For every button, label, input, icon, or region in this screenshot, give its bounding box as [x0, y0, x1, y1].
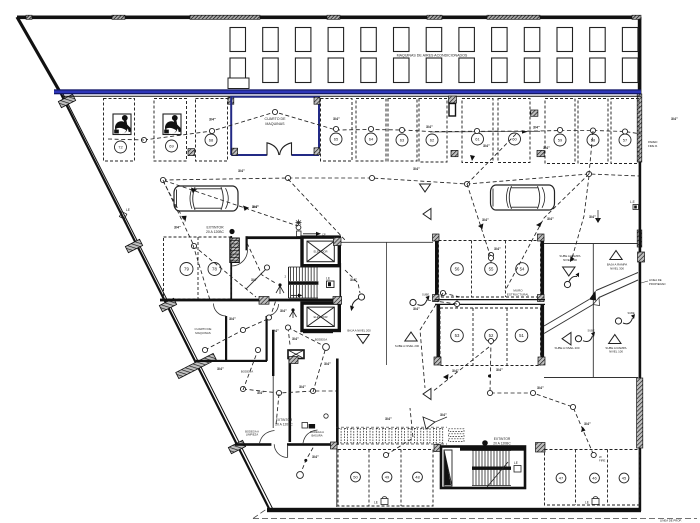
svg-text:3/4": 3/4" — [584, 422, 591, 426]
svg-text:LE: LE — [514, 461, 518, 465]
svg-text:LE: LE — [326, 277, 331, 281]
svg-text:3/4": 3/4" — [483, 144, 490, 148]
svg-text:3/4": 3/4" — [299, 385, 306, 389]
svg-text:EXTINTOR: EXTINTOR — [206, 226, 224, 230]
svg-text:49: 49 — [385, 474, 390, 479]
svg-text:FIRE: FIRE — [599, 459, 606, 463]
svg-text:LIMPIEZA: LIMPIEZA — [246, 433, 258, 437]
svg-text:MAQUINAS DE AIRES ACONDICIONAD: MAQUINAS DE AIRES ACONDICIONADOS — [397, 54, 468, 58]
svg-text:PROPIEDAD: PROPIEDAD — [649, 282, 665, 286]
svg-text:60: 60 — [512, 136, 517, 141]
svg-text:ELEVADOR: ELEVADOR — [314, 250, 328, 254]
svg-text:20 A 120BC: 20 A 120BC — [493, 442, 511, 446]
svg-text:65: 65 — [334, 136, 339, 141]
svg-text:BODEGA: BODEGA — [315, 338, 327, 342]
svg-text:MAQUINAS: MAQUINAS — [195, 331, 210, 335]
svg-text:54: 54 — [520, 266, 525, 271]
svg-text:57: 57 — [623, 137, 628, 142]
svg-text:SUBE: SUBE — [422, 293, 429, 297]
svg-text:3/4": 3/4" — [350, 278, 357, 282]
svg-text:CUARTO DE: CUARTO DE — [264, 117, 286, 121]
svg-text:3/4": 3/4" — [324, 362, 331, 366]
svg-text:59: 59 — [558, 137, 563, 142]
svg-text:3/4": 3/4" — [440, 413, 447, 417]
svg-text:ESTRUCTURAL: ESTRUCTURAL — [507, 292, 530, 296]
svg-text:3/4": 3/4" — [413, 307, 420, 311]
svg-text:EXTINTOR: EXTINTOR — [494, 437, 511, 441]
svg-text:L.E: L.E — [630, 200, 635, 204]
svg-text:3/4": 3/4" — [589, 215, 596, 219]
svg-text:MAQUINAS: MAQUINAS — [265, 122, 285, 126]
svg-text:3/4": 3/4" — [494, 247, 501, 251]
svg-text:BAJA A NIVEL 200: BAJA A NIVEL 200 — [347, 329, 371, 333]
svg-text:45: 45 — [622, 475, 627, 480]
svg-text:3/4": 3/4" — [543, 146, 550, 150]
svg-text:3/4": 3/4" — [537, 386, 544, 390]
svg-text:72: 72 — [118, 144, 123, 149]
svg-text:BODEGA A: BODEGA A — [245, 429, 259, 433]
svg-text:46: 46 — [592, 475, 597, 480]
svg-text:55: 55 — [489, 266, 494, 271]
svg-text:52: 52 — [489, 333, 494, 338]
svg-text:ELEVADOR: ELEVADOR — [314, 315, 328, 319]
svg-text:3/4": 3/4" — [671, 117, 678, 121]
svg-text:79: 79 — [184, 266, 189, 271]
svg-text:NIVEL 300: NIVEL 300 — [610, 266, 624, 270]
svg-text:LE: LE — [585, 501, 589, 505]
svg-text:3/4": 3/4" — [333, 117, 340, 121]
svg-text:LE: LE — [374, 501, 378, 505]
svg-text:3/4": 3/4" — [280, 309, 287, 313]
svg-text:3/4": 3/4" — [257, 391, 264, 395]
svg-text:3/4": 3/4" — [533, 125, 540, 129]
svg-text:SUBE A NIVEL 200: SUBE A NIVEL 200 — [555, 346, 580, 350]
svg-text:EXTINTOR: EXTINTOR — [276, 418, 293, 422]
svg-text:3/4": 3/4" — [251, 278, 258, 282]
svg-text:51: 51 — [519, 333, 524, 338]
svg-text:78: 78 — [212, 266, 217, 271]
svg-text:61: 61 — [475, 136, 480, 141]
svg-text:62: 62 — [430, 137, 435, 142]
svg-text:BASURA: BASURA — [311, 433, 322, 437]
svg-text:68: 68 — [209, 137, 214, 142]
svg-text:47: 47 — [559, 475, 564, 480]
svg-text:BODEGA A: BODEGA A — [310, 430, 324, 434]
svg-text:LINEA DE PROP.: LINEA DE PROP. — [660, 519, 682, 523]
svg-text:3/4": 3/4" — [252, 205, 259, 209]
svg-text:BODEGA: BODEGA — [241, 370, 253, 374]
svg-text:3/4": 3/4" — [229, 317, 236, 321]
svg-text:56: 56 — [455, 266, 460, 271]
svg-text:3/4": 3/4" — [385, 417, 392, 421]
svg-text:64: 64 — [369, 136, 374, 141]
svg-text:SUBE: SUBE — [628, 311, 635, 315]
svg-text:3/4": 3/4" — [238, 169, 245, 173]
svg-text:3/4": 3/4" — [426, 125, 433, 129]
svg-text:3/4": 3/4" — [482, 218, 489, 222]
svg-text:48: 48 — [415, 474, 420, 479]
svg-text:69: 69 — [169, 143, 174, 148]
svg-text:CP: CP — [322, 232, 326, 236]
svg-text:58: 58 — [591, 137, 596, 142]
svg-text:3/4": 3/4" — [312, 455, 319, 459]
svg-text:3/4": 3/4" — [209, 118, 216, 122]
svg-text:NIVEL 100: NIVEL 100 — [609, 350, 623, 354]
svg-text:SUBE: SUBE — [588, 329, 595, 333]
svg-text:SUBE A NIVEL 200: SUBE A NIVEL 200 — [395, 344, 420, 348]
svg-text:63: 63 — [400, 137, 405, 142]
svg-text:3/4": 3/4" — [174, 226, 181, 230]
svg-text:3/4": 3/4" — [217, 367, 224, 371]
svg-text:50: 50 — [353, 474, 358, 479]
svg-text:53: 53 — [455, 333, 460, 338]
svg-text:LE: LE — [126, 208, 130, 212]
svg-text:3/4": 3/4" — [413, 167, 420, 171]
svg-text:3/4": 3/4" — [496, 368, 503, 372]
svg-text:3/4": 3/4" — [547, 217, 554, 221]
svg-text:20 A 120BC: 20 A 120BC — [206, 230, 224, 234]
svg-text:FIRE R.: FIRE R. — [648, 144, 658, 148]
svg-text:3/4": 3/4" — [292, 337, 299, 341]
svg-text:3/4": 3/4" — [452, 369, 459, 373]
svg-text:20 A 120BC: 20 A 120BC — [275, 423, 293, 427]
svg-text:3/4": 3/4" — [272, 329, 279, 333]
